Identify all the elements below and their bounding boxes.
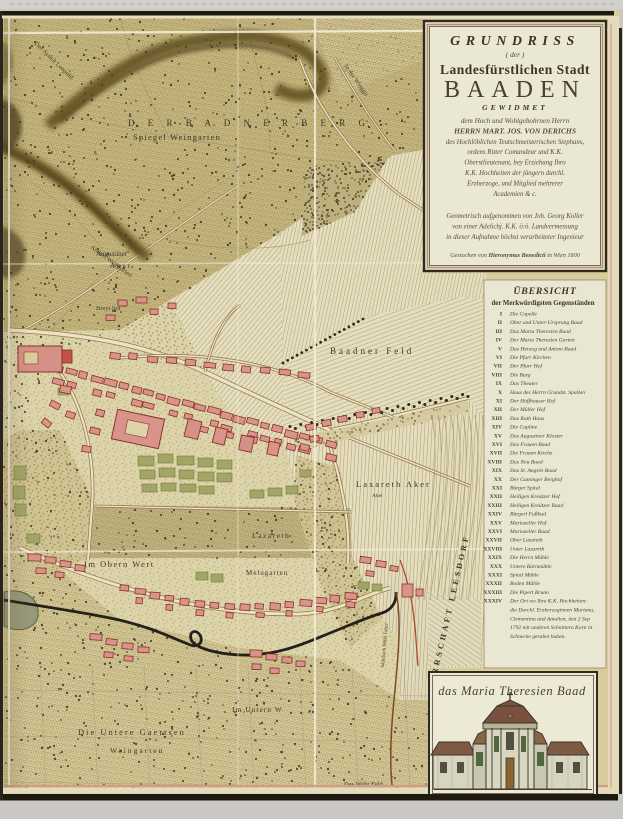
svg-text:XVI: XVI xyxy=(492,442,502,448)
svg-text:Der Pfarr Hof: Der Pfarr Hof xyxy=(509,363,543,370)
svg-text:XXXI: XXXI xyxy=(488,573,502,579)
svg-text:VII: VII xyxy=(494,364,502,370)
svg-text:Augustiner: Augustiner xyxy=(96,250,128,258)
svg-text:Das Augustiner Kloster: Das Augustiner Kloster xyxy=(509,433,564,439)
svg-text:BAADEN: BAADEN xyxy=(444,77,586,103)
svg-text:Der Gaminger Berghof: Der Gaminger Berghof xyxy=(509,476,563,483)
svg-text:XX: XX xyxy=(494,477,502,483)
svg-text:Aker: Aker xyxy=(372,493,383,499)
svg-text:Weingarten: Weingarten xyxy=(110,746,164,755)
svg-text:Schnecke gerabet haben.: Schnecke gerabet haben. xyxy=(510,634,566,640)
svg-text:Die Pipert Brunn: Die Pipert Brunn xyxy=(509,590,549,596)
svg-text:Ober Lazareth: Ober Lazareth xyxy=(510,538,543,544)
svg-text:das Maria Theresien Baad: das Maria Theresien Baad xyxy=(438,684,586,698)
svg-text:Die Capelle: Die Capelle xyxy=(509,312,537,318)
svg-text:ÜBERSICHT: ÜBERSICHT xyxy=(513,284,576,297)
svg-text:des Hochlöblichen Teutschmeist: des Hochlöblichen Teutschmeisterischen S… xyxy=(446,139,585,146)
svg-text:Landesfürstlichen Stadt: Landesfürstlichen Stadt xyxy=(440,62,590,77)
svg-text:XXIII: XXIII xyxy=(487,503,502,509)
svg-text:Das Neu Baad: Das Neu Baad xyxy=(509,459,543,465)
svg-text:1792 mit anderen Schnittern Ko: 1792 mit anderen Schnittern Korn in xyxy=(510,625,592,631)
svg-text:Im Untern W: Im Untern W xyxy=(232,705,283,714)
svg-text:XVIII: XVIII xyxy=(487,459,502,465)
svg-text:Geometrisch aufgenommen von Jo: Geometrisch aufgenommen von Joh. Georg K… xyxy=(446,213,584,220)
svg-text:Untere Bürnmühle: Untere Bürnmühle xyxy=(510,564,552,570)
svg-text:Spiegel Weingarten: Spiegel Weingarten xyxy=(133,132,221,142)
svg-text:XXXII: XXXII xyxy=(486,581,502,587)
svg-text:Der Hoffhauser Hof: Der Hoffhauser Hof xyxy=(509,398,557,405)
svg-text:IV: IV xyxy=(496,338,502,344)
svg-text:XIII: XIII xyxy=(491,416,502,422)
svg-text:Die Pfarr Kirchen: Die Pfarr Kirchen xyxy=(509,354,551,361)
svg-text:Erzherzoge, und Mitglied mehre: Erzherzoge, und Mitglied mehrerer xyxy=(466,180,563,187)
svg-text:Im Obern Wert: Im Obern Wert xyxy=(84,559,155,569)
svg-text:Das Herzog und Antoni Baad: Das Herzog und Antoni Baad xyxy=(509,346,576,352)
svg-text:Clementina und Amalien, den 2: Clementina und Amalien, den 2 Sep xyxy=(510,616,590,622)
svg-text:GEWIDMET: GEWIDMET xyxy=(482,103,548,112)
svg-text:Unter Lazareth: Unter Lazareth xyxy=(510,546,544,552)
svg-text:Haus des Herrn Grundst. Spalle: Haus des Herrn Grundst. Spallen xyxy=(509,390,585,396)
svg-text:K.K. Hochheiten der jüngern du: K.K. Hochheiten der jüngern durchl. xyxy=(464,170,565,177)
svg-text:III: III xyxy=(495,329,502,335)
svg-text:der Merkwürdigsten Gegenstände: der Merkwürdigsten Gegenständen xyxy=(492,300,595,307)
svg-text:Melugarten: Melugarten xyxy=(246,569,288,577)
svg-text:Mariazeller Baad: Mariazeller Baad xyxy=(509,529,550,535)
svg-text:XIV: XIV xyxy=(492,425,502,431)
svg-text:XXI: XXI xyxy=(492,486,502,492)
svg-text:XII: XII xyxy=(494,407,502,413)
svg-text:Baadner Feld: Baadner Feld xyxy=(330,346,414,356)
svg-text:Das Rath Haus: Das Rath Haus xyxy=(509,416,544,422)
svg-text:Gestochen von Hieronymus Bened: Gestochen von Hieronymus Benedicti in Wi… xyxy=(450,252,580,259)
svg-text:Die Capline: Die Capline xyxy=(509,425,538,431)
svg-text:XV: XV xyxy=(494,433,502,439)
svg-text:IX: IX xyxy=(496,381,502,387)
svg-text:XXII: XXII xyxy=(490,494,502,500)
svg-text:XIX: XIX xyxy=(492,468,502,474)
svg-text:XVII: XVII xyxy=(490,451,502,457)
svg-text:Heiligen Kreützer Hof: Heiligen Kreützer Hof xyxy=(509,493,561,500)
svg-text:die Durchl. Erzherzoginnen Mar: die Durchl. Erzherzoginnen Mariana, xyxy=(510,608,595,614)
svg-text:Der Ort wo Ihre K.K. Hochheite: Der Ort wo Ihre K.K. Hochheiten: xyxy=(509,599,587,605)
svg-text:D E R B A D N E R B E R G: D E R B A D N E R B E R G xyxy=(128,118,371,128)
svg-text:Lazareth: Lazareth xyxy=(252,531,290,540)
svg-text:XXVIII: XXVIII xyxy=(483,546,502,552)
svg-text:Das St. Angelo Baad: Das St. Angelo Baad xyxy=(509,468,557,474)
svg-text:XI: XI xyxy=(496,399,502,405)
svg-text:Mariazeller Hof: Mariazeller Hof xyxy=(509,519,548,526)
svg-text:Aker: Aker xyxy=(110,262,132,270)
svg-text:I: I xyxy=(500,312,502,318)
svg-text:Der Maria Theresien Garten: Der Maria Theresien Garten xyxy=(509,338,575,344)
svg-text:Breyt hof: Breyt hof xyxy=(96,305,122,312)
svg-text:Das Frauen Baad: Das Frauen Baad xyxy=(509,442,550,448)
svg-text:ordens Ritter Comandeur und K.: ordens Ritter Comandeur und K.K. xyxy=(467,149,563,156)
svg-text:Das Theater: Das Theater xyxy=(509,381,539,387)
svg-text:in dieser Aufnahme höchst vera: in dieser Aufnahme höchst verarbeiteter … xyxy=(446,234,584,241)
svg-text:Die Herrn Mühle: Die Herrn Mühle xyxy=(509,555,549,561)
svg-text:Der Müller Hof: Der Müller Hof xyxy=(509,406,547,413)
svg-text:XXXIII: XXXIII xyxy=(483,590,502,596)
svg-text:Bürger Spital: Bürger Spital xyxy=(510,486,541,492)
svg-text:( der ): ( der ) xyxy=(506,50,525,59)
svg-text:XXIV: XXIV xyxy=(488,512,502,518)
svg-text:X: X xyxy=(498,390,502,396)
svg-text:Spital Mühle: Spital Mühle xyxy=(510,573,539,579)
svg-text:VIII: VIII xyxy=(491,372,502,378)
svg-text:Heiligen Kreützer Baad: Heiligen Kreützer Baad xyxy=(509,503,563,509)
svg-text:dem Hoch und Wohlgebohrnen Her: dem Hoch und Wohlgebohrnen Herrn xyxy=(461,117,570,125)
svg-text:V: V xyxy=(498,346,502,352)
svg-text:von einer Adelichj. K.K. ö:ö.: von einer Adelichj. K.K. ö:ö. Landvermes… xyxy=(452,224,578,231)
svg-text:Boden Mühle: Boden Mühle xyxy=(510,581,540,587)
svg-text:Laxareth Aker: Laxareth Aker xyxy=(356,479,431,489)
svg-text:XXV: XXV xyxy=(490,520,502,526)
svg-text:Die Frauen Kirche: Die Frauen Kirche xyxy=(509,451,553,457)
svg-text:II: II xyxy=(498,320,502,326)
svg-text:Die Untere Gaertsen: Die Untere Gaertsen xyxy=(78,727,186,737)
svg-text:HERRN MART. JOS. VON DERICHS: HERRN MART. JOS. VON DERICHS xyxy=(453,126,576,135)
svg-text:Academien & c.: Academien & c. xyxy=(492,191,537,198)
svg-text:XXXIV: XXXIV xyxy=(484,599,502,605)
svg-text:Das Maria Theresien Baad: Das Maria Theresien Baad xyxy=(509,329,571,335)
svg-text:Oberstlieutenant, bey Erziehun: Oberstlieutenant, bey Erziehung Ihro xyxy=(464,160,566,167)
svg-text:Bürgerl Fußbad: Bürgerl Fußbad xyxy=(510,511,546,518)
svg-text:XXX: XXX xyxy=(490,564,502,570)
svg-text:XXIX: XXIX xyxy=(488,555,502,561)
svg-text:Ober und Unter-Ursprung Baad: Ober und Unter-Ursprung Baad xyxy=(510,320,583,326)
svg-text:Die Burg: Die Burg xyxy=(509,372,531,378)
svg-text:VI: VI xyxy=(496,355,502,361)
svg-text:XXVII: XXVII xyxy=(486,538,502,544)
svg-text:XXVI: XXVI xyxy=(488,529,502,535)
svg-text:GRUNDRISS: GRUNDRISS xyxy=(450,34,580,49)
